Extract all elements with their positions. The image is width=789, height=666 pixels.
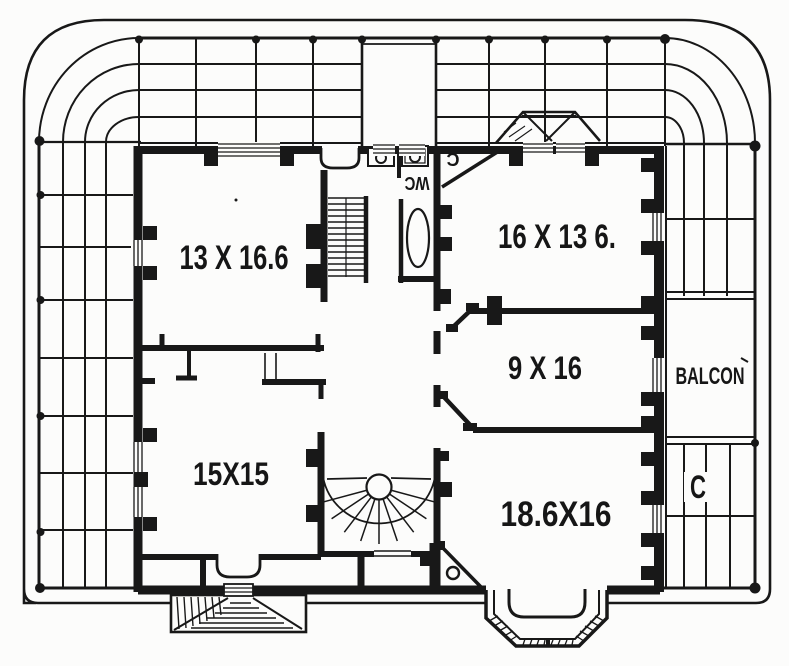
svg-text:BALCON: BALCON (676, 363, 745, 390)
svg-text:16 X 13 6.: 16 X 13 6. (498, 218, 616, 256)
svg-text:15X15: 15X15 (193, 456, 269, 492)
svg-text:WC: WC (405, 173, 430, 193)
svg-text:9 X 16: 9 X 16 (508, 350, 582, 386)
svg-text:C: C (690, 469, 706, 505)
svg-text:13 X 16.6: 13 X 16.6 (180, 239, 289, 277)
svg-text:C: C (447, 149, 460, 169)
svg-text:18.6X16: 18.6X16 (501, 495, 612, 534)
